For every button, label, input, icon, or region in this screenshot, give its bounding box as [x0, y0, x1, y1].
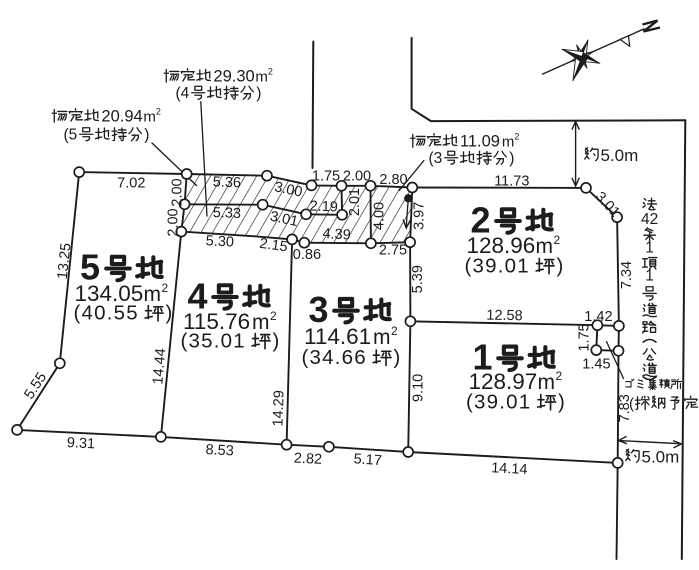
svg-text:20.94: 20.94	[101, 108, 142, 126]
svg-text:2.80: 2.80	[379, 172, 407, 188]
svg-text:2.19: 2.19	[309, 199, 338, 216]
svg-text:11.73: 11.73	[494, 174, 529, 190]
svg-text:4.39: 4.39	[322, 226, 351, 243]
svg-text:2: 2	[554, 233, 561, 247]
svg-text:42: 42	[641, 211, 658, 228]
svg-text:1.45: 1.45	[582, 357, 610, 373]
svg-text:1.75: 1.75	[577, 323, 593, 351]
svg-text:): )	[166, 302, 173, 325]
svg-text:): )	[394, 346, 401, 369]
svg-text:): )	[256, 85, 261, 102]
svg-text:7.02: 7.02	[117, 175, 145, 191]
svg-text:9.31: 9.31	[66, 435, 95, 452]
svg-text:2: 2	[391, 324, 398, 338]
svg-text:2.00: 2.00	[343, 168, 371, 184]
svg-text:5.0m: 5.0m	[601, 146, 639, 165]
svg-text:14.14: 14.14	[491, 460, 528, 478]
svg-text:11.09: 11.09	[460, 133, 500, 151]
svg-text:1: 1	[645, 268, 654, 285]
svg-text:9.10: 9.10	[411, 374, 427, 402]
svg-text:(4: (4	[176, 85, 190, 102]
svg-text:m: m	[502, 134, 515, 151]
svg-text:): )	[557, 254, 564, 277]
svg-text:5.36: 5.36	[212, 174, 241, 191]
svg-text:1.75: 1.75	[312, 168, 340, 184]
svg-text:2.82: 2.82	[293, 450, 322, 467]
svg-text:): )	[558, 391, 565, 414]
svg-text:2.00: 2.00	[170, 178, 186, 206]
svg-text:7.34: 7.34	[619, 261, 635, 289]
svg-text:2: 2	[268, 67, 273, 77]
svg-text:8.53: 8.53	[205, 442, 234, 459]
svg-text:5.30: 5.30	[205, 233, 234, 250]
svg-text:(39.01: (39.01	[465, 254, 530, 277]
svg-text:1: 1	[645, 240, 654, 257]
svg-text:(5: (5	[64, 127, 78, 144]
svg-text:7.83: 7.83	[617, 394, 633, 422]
svg-text:29.30: 29.30	[213, 68, 254, 86]
svg-text:m: m	[538, 371, 556, 394]
svg-text:): )	[273, 329, 280, 352]
svg-text:5.33: 5.33	[212, 205, 241, 222]
svg-text:2.00: 2.00	[166, 208, 182, 236]
svg-text:1.42: 1.42	[584, 309, 612, 325]
svg-text:4.00: 4.00	[372, 202, 388, 230]
svg-text:(39.01: (39.01	[466, 391, 531, 414]
svg-text:(35.01: (35.01	[181, 329, 246, 352]
svg-text:m: m	[373, 326, 391, 349]
svg-text:m: m	[252, 311, 270, 334]
svg-text:3.97: 3.97	[412, 202, 428, 230]
svg-text:): )	[144, 127, 149, 144]
svg-text:12.58: 12.58	[486, 308, 523, 325]
svg-text:2: 2	[270, 309, 277, 323]
svg-text:2: 2	[556, 369, 563, 383]
svg-text:2.01: 2.01	[347, 188, 363, 216]
svg-text:2: 2	[514, 132, 519, 142]
svg-text:2.75: 2.75	[379, 242, 407, 258]
svg-text:(40.55: (40.55	[74, 302, 139, 325]
svg-text:m: m	[144, 283, 162, 306]
svg-text:14.29: 14.29	[270, 390, 287, 427]
svg-text:m: m	[143, 109, 156, 126]
svg-text:0.86: 0.86	[293, 247, 321, 263]
svg-text:5.0m: 5.0m	[642, 448, 680, 467]
svg-text:5.17: 5.17	[353, 451, 382, 469]
svg-text:14.44: 14.44	[150, 348, 169, 386]
svg-text:m: m	[255, 69, 268, 86]
svg-text:5.39: 5.39	[410, 265, 426, 293]
svg-text:m: m	[536, 235, 554, 258]
svg-text:2: 2	[162, 281, 169, 295]
svg-text:2: 2	[156, 107, 161, 117]
svg-text:(3: (3	[429, 150, 443, 167]
svg-text:(34.66: (34.66	[302, 346, 367, 369]
svg-text:): )	[509, 150, 514, 167]
